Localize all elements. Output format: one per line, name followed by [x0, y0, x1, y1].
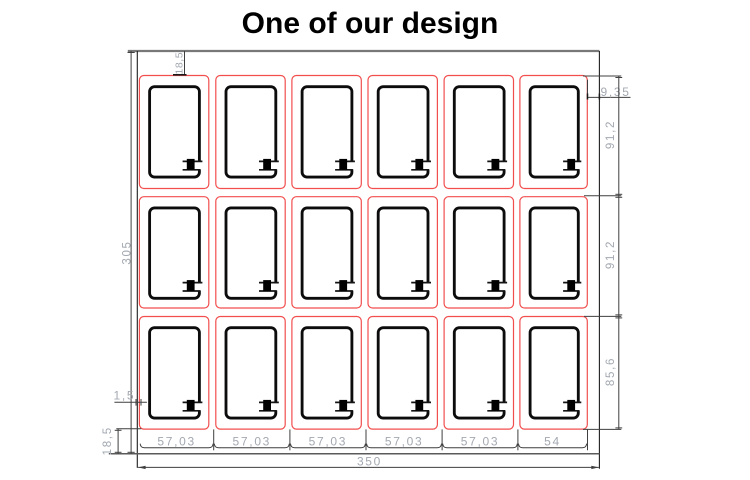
svg-text:57,03: 57,03	[385, 434, 424, 448]
svg-text:18,5: 18,5	[174, 52, 186, 75]
svg-text:91,2: 91,2	[605, 120, 617, 149]
svg-text:57,03: 57,03	[233, 434, 272, 448]
svg-text:350: 350	[357, 455, 382, 469]
svg-text:One of our design: One of our design	[242, 7, 499, 40]
svg-text:85,6: 85,6	[605, 357, 617, 386]
svg-text:305: 305	[121, 240, 133, 264]
svg-text:91,2: 91,2	[605, 240, 617, 269]
svg-text:57,03: 57,03	[461, 434, 500, 448]
svg-text:1,5: 1,5	[114, 389, 136, 403]
svg-text:18,5: 18,5	[102, 426, 114, 455]
svg-text:54: 54	[544, 434, 561, 448]
svg-text:9,35: 9,35	[601, 85, 631, 99]
svg-text:57,03: 57,03	[309, 434, 348, 448]
svg-text:57,03: 57,03	[157, 434, 196, 448]
